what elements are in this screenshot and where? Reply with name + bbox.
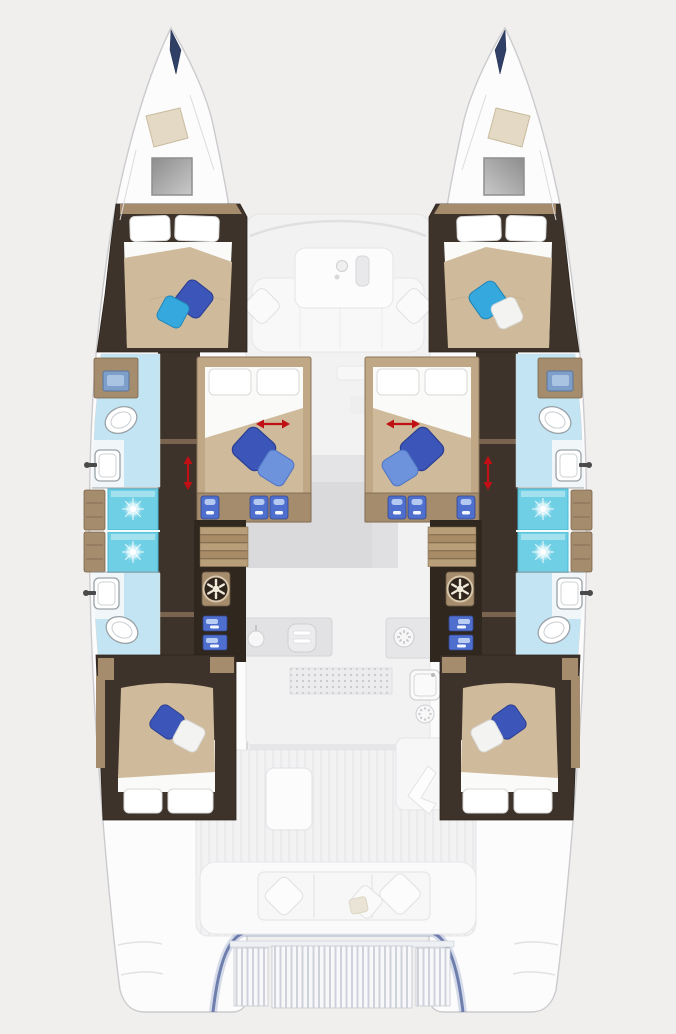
galley-sink-icon — [248, 631, 264, 647]
cup-icon — [337, 261, 348, 272]
swim-grating — [234, 948, 268, 1006]
forward-table — [295, 248, 393, 308]
tray-icon — [356, 256, 369, 286]
oven-icon — [288, 624, 316, 652]
aft-cockpit — [196, 738, 476, 1012]
cockpit-table — [266, 768, 312, 830]
floor-mat — [290, 668, 392, 694]
floor-plan-canvas — [0, 0, 676, 1034]
swim-grating — [416, 948, 450, 1006]
swim-grating — [272, 946, 412, 1008]
scatter-cushion — [349, 896, 369, 914]
floor-plan — [0, 0, 676, 1034]
